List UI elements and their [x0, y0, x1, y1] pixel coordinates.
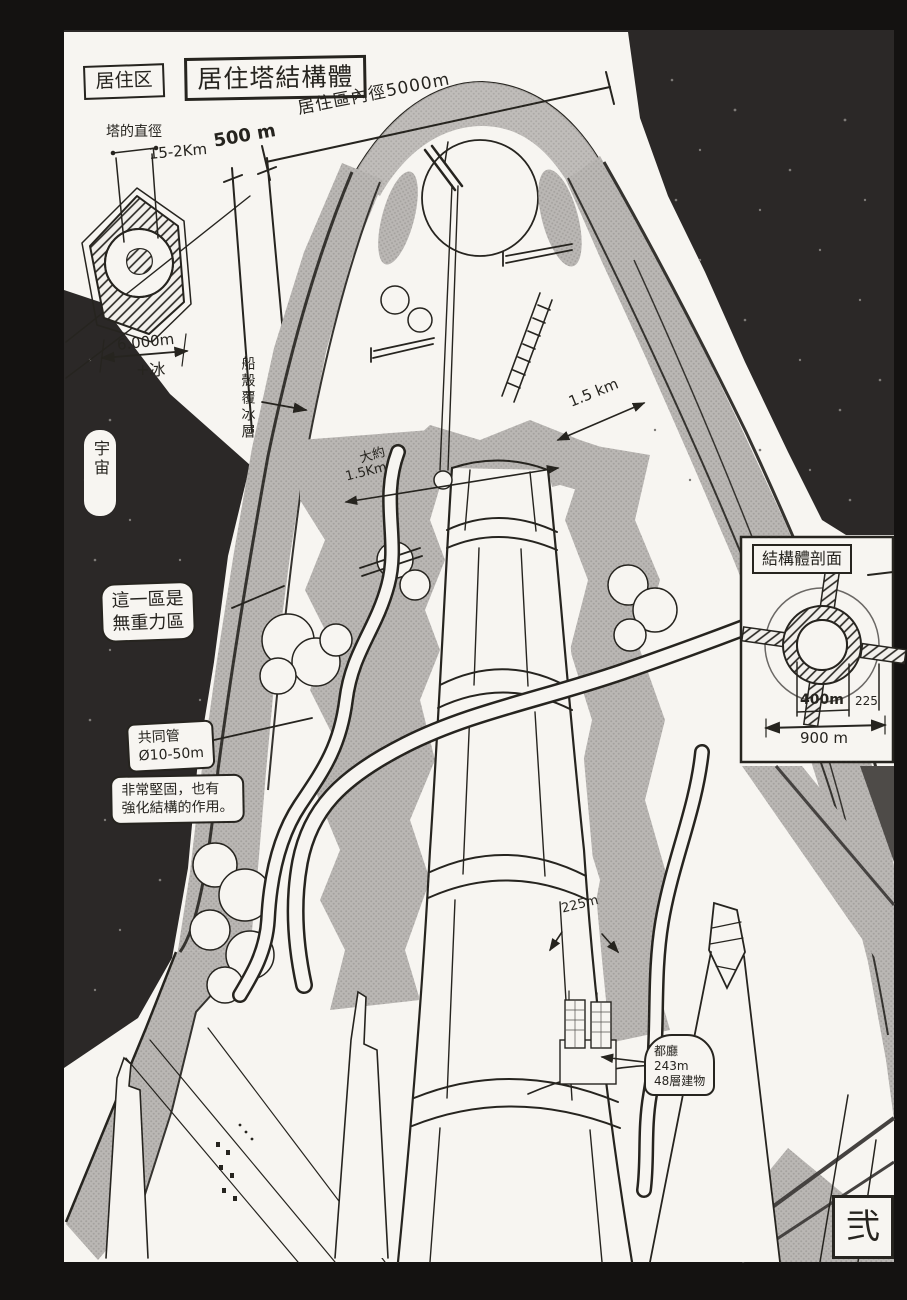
page-number-stamp: 弐 — [832, 1195, 894, 1259]
tocho-line1: 都廳 — [654, 1044, 705, 1059]
tower-illustration — [0, 0, 907, 1300]
hex-caption: 塔的直徑 — [106, 124, 162, 142]
zero-g-callout: 這一區是 無重力區 — [100, 581, 196, 643]
zero-g-line1: 這一區是 — [111, 588, 184, 613]
tocho-callout: 都廳 243m 48層建物 — [644, 1034, 715, 1096]
tocho-line3: 48層建物 — [654, 1074, 705, 1089]
cross-section-title: 結構體剖面 — [752, 544, 852, 574]
tocho-line2: 243m — [654, 1059, 705, 1074]
area-tag-box: 居住区 — [83, 63, 165, 100]
pipe-line2: Ø10-50m — [138, 744, 204, 765]
pipe-callout: 共同管 Ø10-50m — [126, 719, 216, 773]
cs-dim-wall: 225 — [855, 694, 878, 709]
manga-diagram-page: 居住区 居住塔結構體 塔的直徑 15-2Km 500 m 居住區內徑5000m … — [0, 0, 907, 1300]
cs-dim-inner: 400m — [800, 692, 844, 710]
sturdy-line1: 非常堅固，也有 — [121, 781, 233, 800]
cs-dim-outer: 900 m — [800, 729, 848, 748]
space-label: 宇宙 — [84, 430, 116, 516]
zero-g-line2: 無重力區 — [112, 611, 185, 636]
sturdy-callout: 非常堅固，也有 強化結構的作用。 — [110, 774, 245, 825]
plus-ice-note: +冰 — [136, 360, 165, 380]
hull-ice-label: 船殼覆冰層 — [238, 356, 256, 481]
sturdy-line2: 強化結構的作用。 — [121, 798, 233, 817]
